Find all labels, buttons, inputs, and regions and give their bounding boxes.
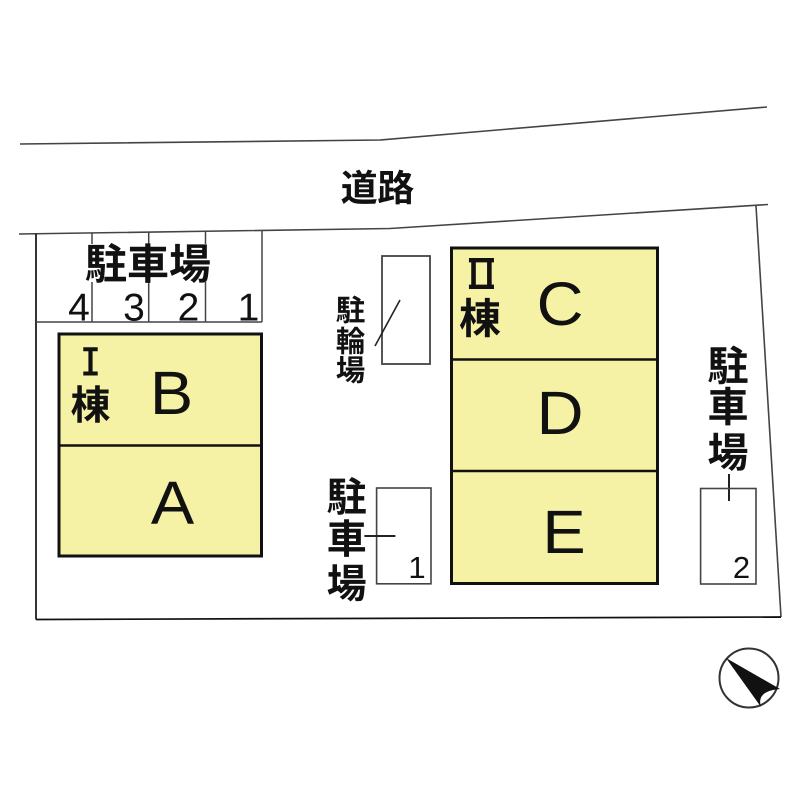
svg-text:C: C <box>537 271 584 339</box>
svg-text:4: 4 <box>68 287 90 330</box>
svg-text:D: D <box>537 380 584 448</box>
svg-text:1: 1 <box>408 550 425 585</box>
svg-text:1: 1 <box>238 287 260 330</box>
svg-text:2: 2 <box>178 287 200 330</box>
svg-text:B: B <box>150 359 193 427</box>
svg-text:A: A <box>151 470 194 538</box>
svg-text:3: 3 <box>123 287 145 330</box>
svg-text:E: E <box>542 499 585 567</box>
svg-text:2: 2 <box>733 550 750 585</box>
